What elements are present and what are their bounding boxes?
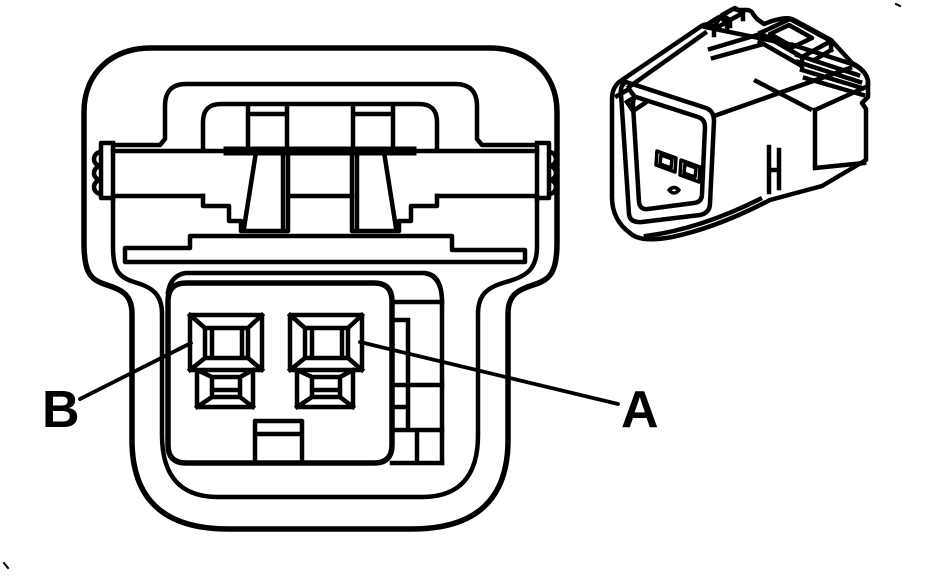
front-keying-features [392, 302, 442, 463]
front-shelf-plate [125, 236, 525, 262]
callout-a-leader-line [360, 342, 618, 404]
diagram-canvas: B A [0, 0, 928, 578]
front-inner-wall-lower [113, 198, 537, 497]
terminal-b [190, 315, 262, 407]
terminal-a [290, 315, 362, 407]
connector-perspective-view [612, 8, 868, 239]
callout-a-label: A [621, 381, 659, 439]
persp-terminal-pins [656, 151, 700, 193]
terminal-b-outline [190, 315, 262, 407]
front-lock-band [113, 151, 537, 196]
connector-diagram-figure: B A [0, 0, 928, 578]
callout-b-label: B [42, 381, 80, 439]
front-index-tab [255, 421, 302, 463]
connector-front-view [84, 48, 557, 529]
callout-b-leader-line [80, 343, 191, 399]
front-inner-wall-upper [113, 84, 537, 200]
front-outer-body-outline [84, 48, 557, 529]
persp-rear-block [769, 110, 864, 192]
terminal-a-outline [290, 315, 362, 407]
front-latch-housing [203, 104, 437, 150]
front-lock-prongs [203, 152, 437, 231]
